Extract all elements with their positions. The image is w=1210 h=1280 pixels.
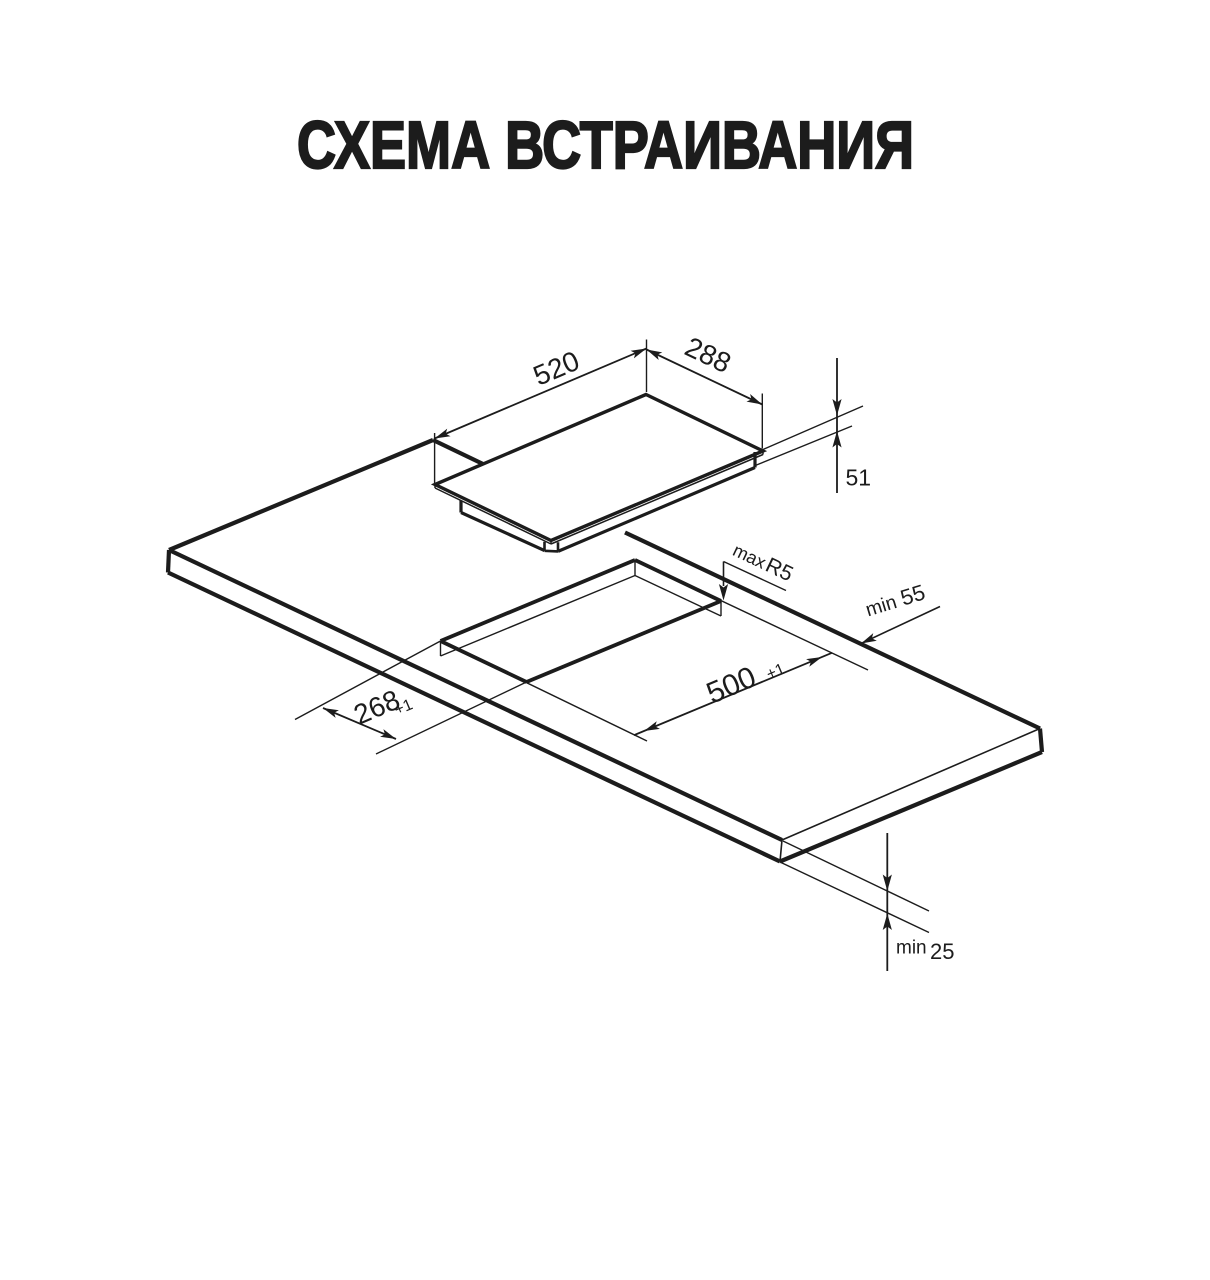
svg-text:min 55: min 55 [862,579,928,621]
svg-text:25: 25 [930,939,954,964]
svg-text:520: 520 [529,345,584,392]
svg-text:500+1: 500+1 [702,649,789,711]
svg-text:51: 51 [846,465,872,491]
svg-text:268+1: 268+1 [349,680,415,735]
svg-text:288: 288 [680,331,735,379]
svg-text:СХЕМА ВСТРАИВАНИЯ: СХЕМА ВСТРАИВАНИЯ [297,108,914,183]
svg-text:maxR5: maxR5 [729,537,797,586]
svg-text:min: min [896,938,927,959]
